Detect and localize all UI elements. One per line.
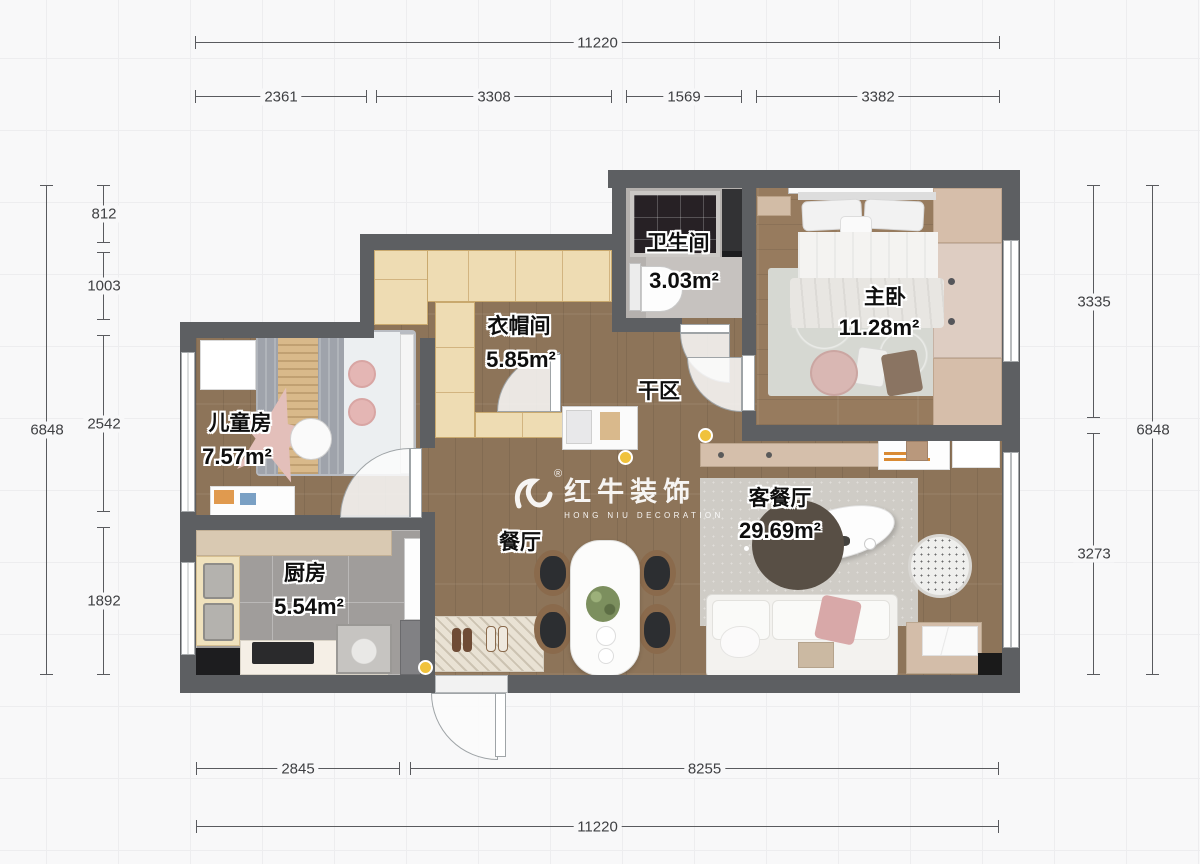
- ceiling-light-1: [618, 450, 633, 465]
- kids-ball: [290, 418, 332, 460]
- kitchen-appliance: [336, 624, 392, 674]
- dim-top-seg-2: 3308: [376, 96, 612, 97]
- bathroom-cabinet: [722, 189, 742, 261]
- dim-top-total: 11220: [195, 42, 1000, 43]
- console-knob-1: [718, 452, 724, 458]
- entry-door-swing: [431, 693, 498, 760]
- vanity-mirror: [566, 410, 592, 444]
- fur-pillow: [720, 626, 760, 658]
- floor-pillow-brown: [881, 349, 924, 397]
- dim-right-total: 6848: [1152, 185, 1153, 675]
- vanity-wood-box: [600, 412, 620, 440]
- label-master-name: 主卧: [864, 281, 906, 311]
- label-cloakroom-area: 5.85m²: [486, 347, 556, 373]
- window-living-room: [1003, 452, 1019, 648]
- label-dining-name: 餐厅: [499, 526, 541, 556]
- wall-kitchen-right: [420, 530, 435, 675]
- window-master-bedroom: [1003, 240, 1019, 362]
- dim-bottom-seg-1: 2845: [196, 768, 400, 769]
- wall-cloakroom-left: [360, 234, 374, 338]
- label-kids-name: 儿童房: [209, 407, 272, 437]
- wall-bedroom-left-upper: [742, 188, 756, 355]
- label-dry-area-name: 干区: [638, 375, 680, 405]
- master-pouf: [810, 350, 858, 396]
- bedroom-door-leaf: [742, 355, 755, 411]
- dim-left-seg-2: 1003: [103, 252, 104, 320]
- shoes-pair-2a: [486, 626, 496, 652]
- dim-right-seg-2: 3273: [1093, 433, 1094, 675]
- shoes-pair-2b: [498, 626, 508, 652]
- marker-dot-a: [744, 546, 749, 551]
- wall-top-cloakroom: [360, 234, 612, 250]
- label-master-area: 11.28m²: [839, 315, 920, 341]
- nightstand: [757, 196, 791, 216]
- dim-top-seg-1: 2361: [195, 96, 367, 97]
- kitchen-sink-top: [203, 563, 234, 599]
- dim-top-seg-4: 3382: [756, 96, 1000, 97]
- dim-right-seg-1: 3335: [1093, 185, 1094, 418]
- brand-name: 红牛装饰: [564, 470, 724, 509]
- window-kitchen: [181, 562, 195, 655]
- side-table-marble: [922, 626, 978, 656]
- brand-watermark: ® 红牛装饰 HONG NIU DECORATION: [512, 470, 724, 521]
- dim-left-seg-3: 2542: [103, 335, 104, 512]
- label-living-name: 客餐厅: [749, 482, 812, 512]
- dining-vase-2: [598, 648, 614, 664]
- shoes-pair-1b: [463, 628, 472, 652]
- kitchen-top-counter: [196, 530, 392, 556]
- kitchen-tall-cabinet: [404, 538, 421, 620]
- dining-chair-seat-2: [540, 612, 566, 648]
- wardrobe-handle-2: [948, 318, 955, 325]
- ceiling-light-2: [698, 428, 713, 443]
- dim-left-total: 6848: [46, 185, 47, 675]
- shoes-pair-1a: [452, 628, 461, 652]
- wall-bottom-right: [508, 675, 1020, 693]
- console-knob-2: [766, 452, 772, 458]
- table-cup: [864, 538, 876, 550]
- brand-registered-mark: ®: [554, 468, 562, 480]
- dining-plant: [586, 586, 620, 622]
- kids-toy-1: [214, 490, 234, 504]
- window-kids-room: [181, 352, 195, 512]
- kids-pillow-2: [348, 398, 376, 426]
- label-kitchen-name: 厨房: [284, 557, 326, 587]
- sofa-tray: [798, 642, 834, 668]
- dining-chair-seat-1: [540, 556, 566, 590]
- kids-toy-2: [240, 493, 256, 505]
- kitchen-black-cabinet: [196, 648, 240, 675]
- label-kids-area: 7.57m²: [202, 444, 272, 470]
- tv-console: [700, 443, 890, 467]
- armchair: [908, 534, 972, 598]
- label-bathroom-area: 3.03m²: [649, 268, 719, 294]
- dim-top-seg-3: 1569: [626, 96, 742, 97]
- dim-left-seg-4: 1892: [103, 527, 104, 675]
- brand-logo-bull-icon: [512, 472, 554, 521]
- wall-bathroom-bottom: [612, 318, 682, 332]
- wall-bottom-left: [180, 675, 435, 693]
- label-cloakroom-name: 衣帽间: [488, 310, 551, 340]
- wall-bathroom-left: [612, 188, 626, 332]
- cloakroom-inner-cabinets: [435, 302, 475, 438]
- brand-subtitle: HONG NIU DECORATION: [564, 511, 724, 520]
- ceiling-light-3: [418, 660, 433, 675]
- kids-desk: [200, 340, 256, 390]
- desk-box: [906, 441, 928, 461]
- wall-top-kids: [180, 322, 374, 338]
- master-pillow-right: [863, 198, 924, 231]
- dim-bottom-seg-2: 8255: [410, 768, 999, 769]
- wall-panel: [952, 440, 1000, 468]
- cloakroom-left-cabinets: [374, 250, 428, 325]
- label-kitchen-area: 5.54m²: [274, 594, 344, 620]
- round-rug: [752, 500, 844, 590]
- corner-black-box: [978, 653, 1002, 675]
- wall-bedroom-living-divider: [742, 425, 1002, 441]
- dining-chair-seat-4: [644, 612, 670, 648]
- bathroom-door-leaf: [680, 324, 730, 333]
- floorplan-page: { "watermark": { "reg": "®", "brand": "红…: [0, 0, 1200, 864]
- kids-pillow-1: [348, 360, 376, 388]
- dim-bottom-total: 11220: [196, 826, 999, 827]
- kitchen-sink-bottom: [203, 603, 234, 641]
- dining-chair-seat-3: [644, 556, 670, 590]
- toilet-tank: [629, 263, 641, 311]
- wall-kids-right-upper: [420, 338, 435, 448]
- cloakroom-bottom-cabinets: [475, 412, 570, 438]
- wardrobe-top: [933, 188, 1002, 243]
- label-bathroom-name: 卫生间: [647, 227, 710, 257]
- entry-threshold: [435, 675, 508, 693]
- kids-door-leaf: [410, 448, 422, 518]
- label-living-area: 29.69m²: [739, 518, 821, 544]
- dim-left-seg-1: 812: [103, 185, 104, 243]
- cooktop: [252, 642, 314, 664]
- wall-top-right: [608, 170, 1020, 188]
- dining-vase-1: [596, 626, 616, 646]
- entry-door-leaf: [495, 693, 506, 757]
- wardrobe-handle-1: [948, 278, 955, 285]
